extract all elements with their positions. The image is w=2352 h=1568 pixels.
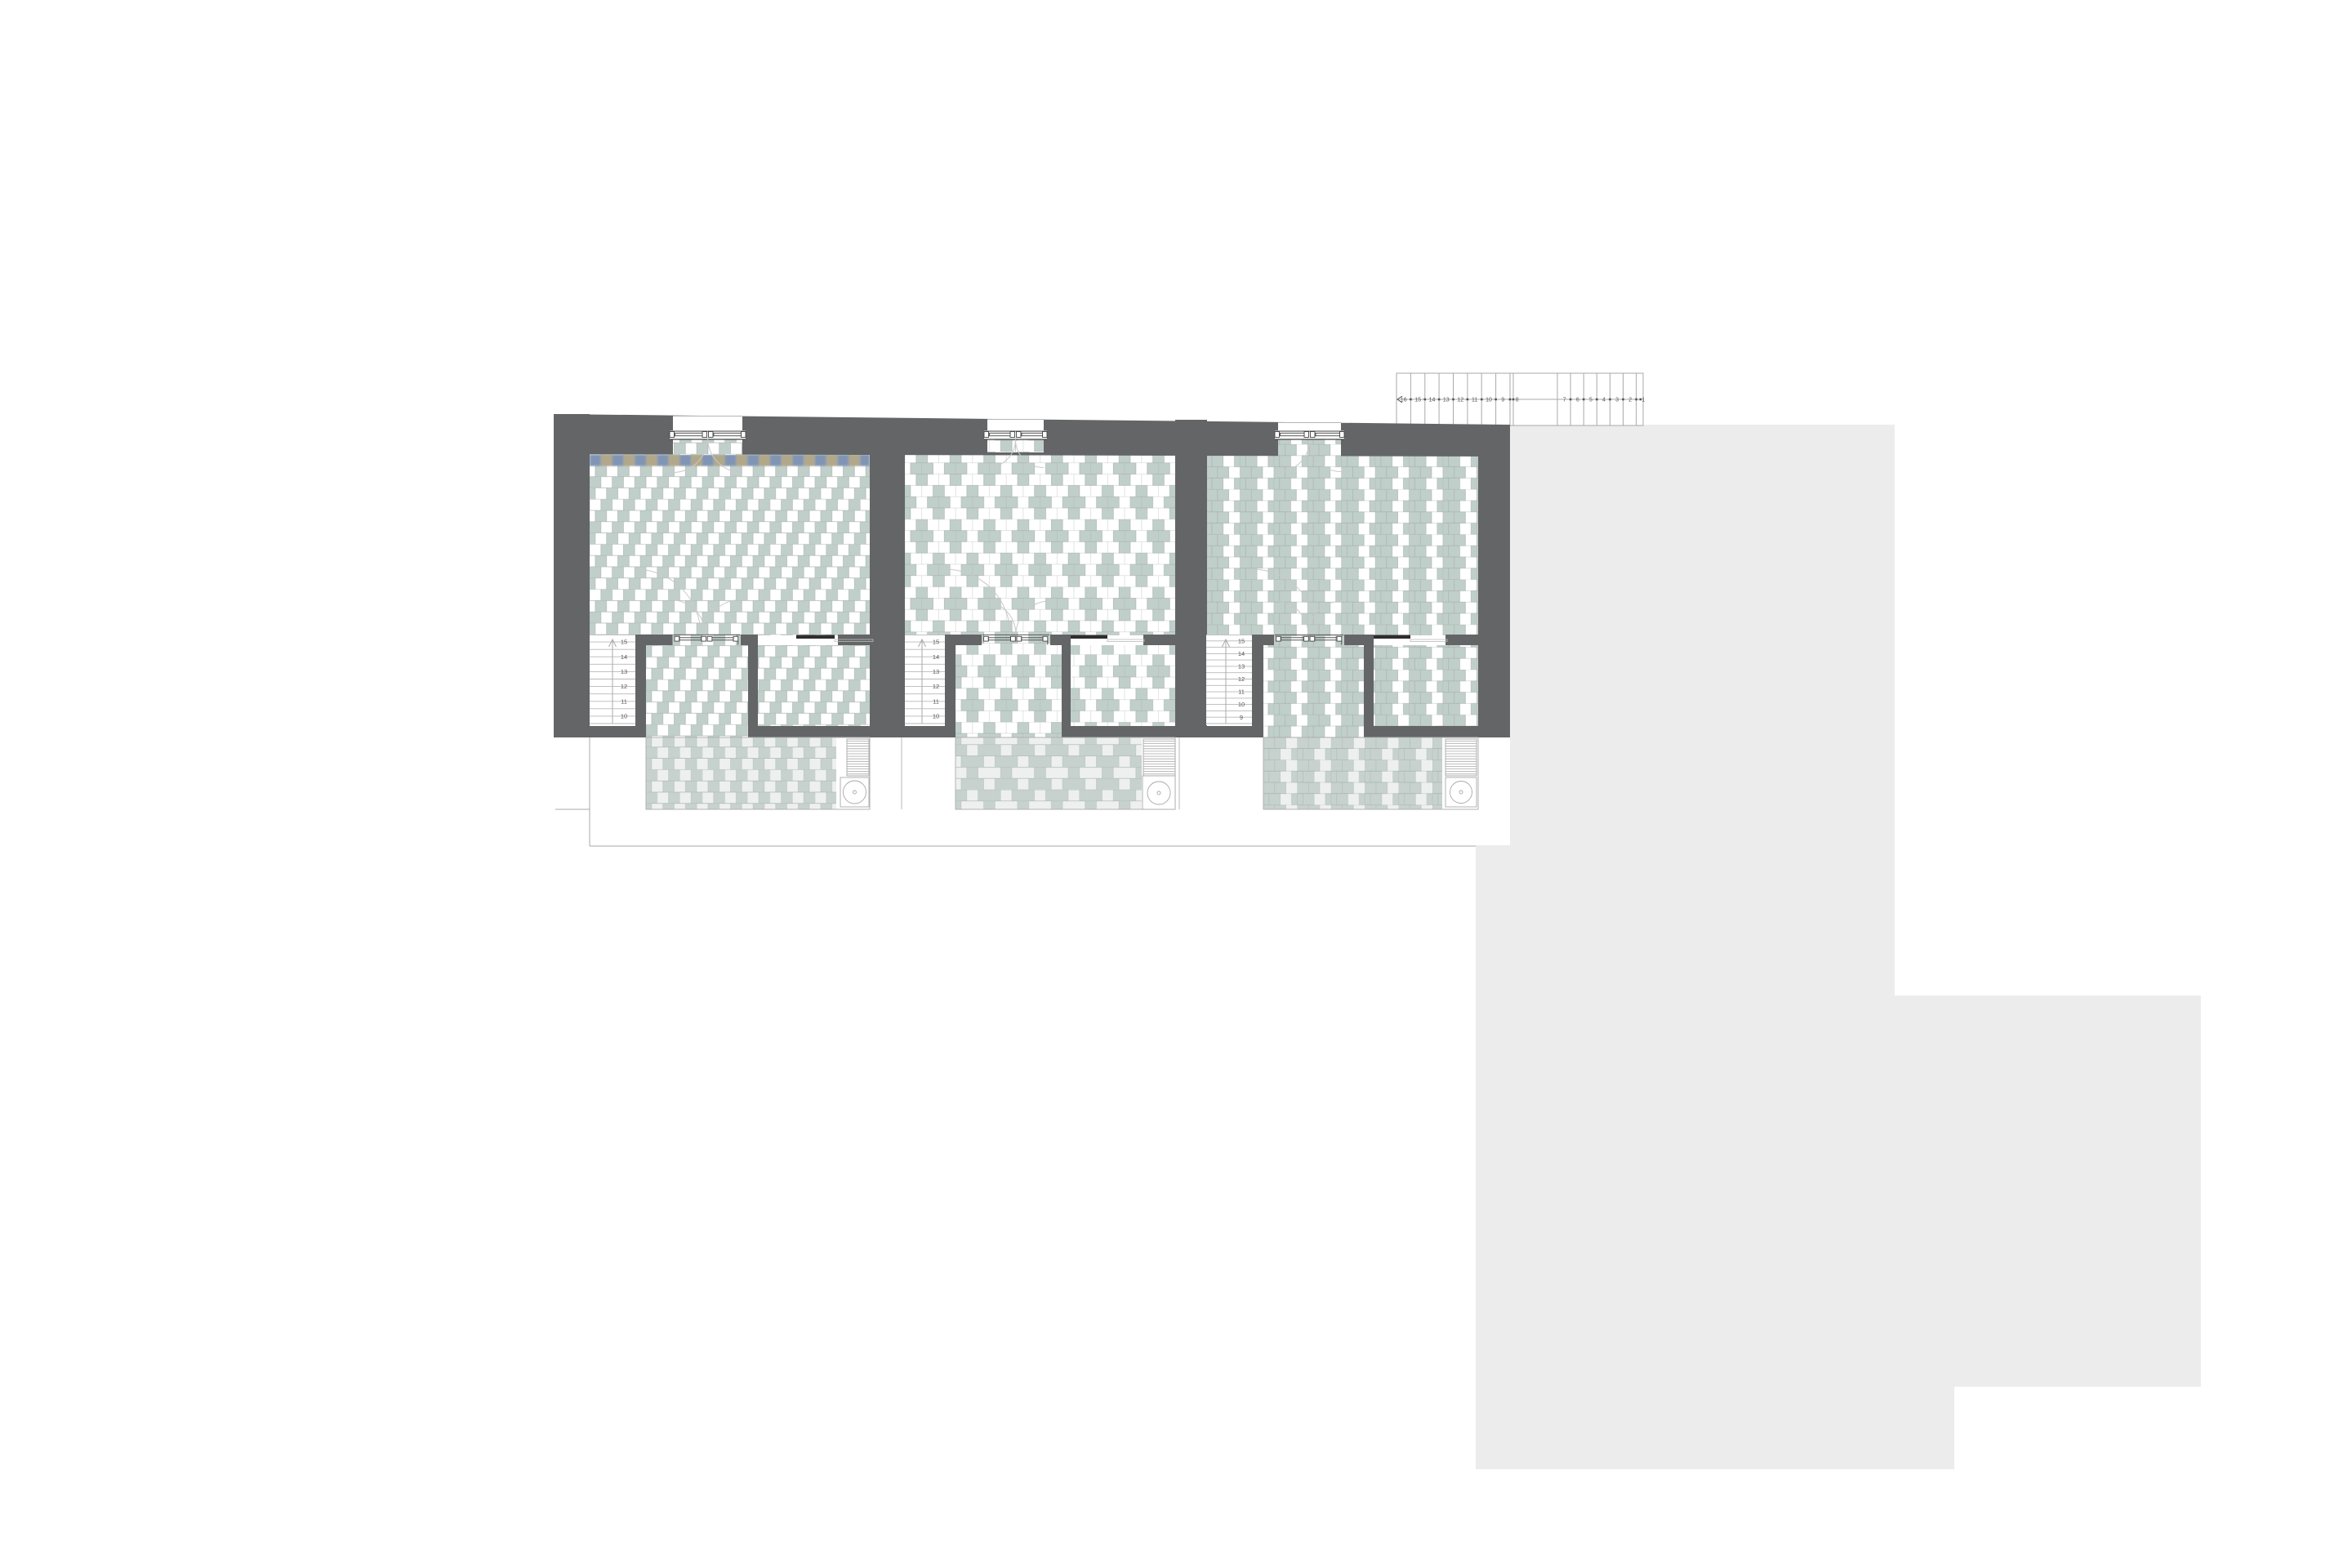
svg-text:3: 3 [1615, 398, 1619, 403]
svg-text:12: 12 [1238, 675, 1245, 683]
svg-text:13: 13 [1238, 663, 1245, 670]
svg-text:7: 7 [1563, 398, 1566, 403]
svg-text:15: 15 [1238, 637, 1245, 644]
svg-text:13: 13 [1443, 398, 1450, 403]
svg-text:13: 13 [933, 668, 939, 675]
svg-text:10: 10 [933, 713, 939, 720]
svg-text:10: 10 [1486, 398, 1492, 403]
svg-text:11: 11 [933, 697, 939, 705]
svg-text:15: 15 [1414, 398, 1421, 403]
svg-text:12: 12 [933, 683, 939, 690]
svg-text:12: 12 [621, 683, 627, 690]
svg-text:11: 11 [1238, 688, 1245, 696]
svg-text:10: 10 [621, 713, 627, 720]
svg-text:5: 5 [1589, 398, 1592, 403]
svg-text:13: 13 [621, 668, 627, 675]
svg-text:9: 9 [1240, 714, 1243, 721]
svg-text:9: 9 [1501, 398, 1504, 403]
svg-text:12: 12 [1457, 398, 1463, 403]
svg-text:8: 8 [1516, 398, 1519, 403]
svg-text:14: 14 [1429, 398, 1436, 403]
svg-text:2: 2 [1628, 398, 1632, 403]
svg-text:11: 11 [621, 697, 627, 705]
svg-text:6: 6 [1576, 398, 1579, 403]
svg-text:14: 14 [621, 653, 627, 661]
svg-text:15: 15 [933, 639, 939, 646]
svg-text:4: 4 [1602, 398, 1606, 403]
svg-text:15: 15 [621, 639, 627, 646]
svg-text:11: 11 [1472, 398, 1477, 403]
svg-text:10: 10 [1238, 701, 1245, 708]
svg-text:14: 14 [1238, 650, 1245, 657]
svg-text:14: 14 [933, 653, 939, 661]
svg-text:1: 1 [1641, 398, 1645, 403]
